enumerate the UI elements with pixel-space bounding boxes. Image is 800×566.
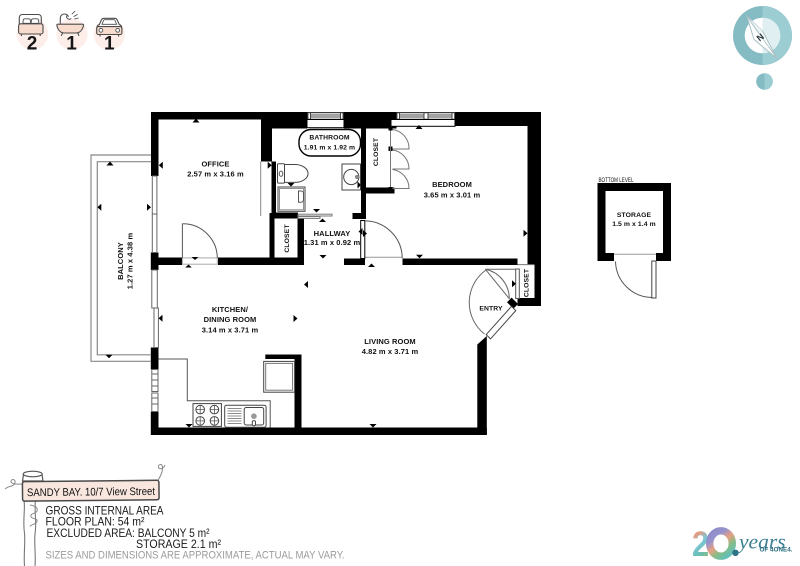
svg-text:1: 1 bbox=[104, 34, 115, 55]
svg-text:2.57 m x 3.16 m: 2.57 m x 3.16 m bbox=[187, 170, 244, 179]
svg-text:1: 1 bbox=[66, 34, 77, 55]
svg-text:BOTTOM LEVEL: BOTTOM LEVEL bbox=[599, 177, 634, 184]
svg-text:BALCONY: BALCONY bbox=[116, 242, 125, 280]
svg-text:SIZES AND DIMENSIONS ARE APPRO: SIZES AND DIMENSIONS ARE APPROXIMATE, AC… bbox=[46, 550, 345, 562]
svg-text:KITCHEN/: KITCHEN/ bbox=[212, 305, 249, 314]
svg-text:3.14 m x 3.71 m: 3.14 m x 3.71 m bbox=[202, 326, 259, 335]
svg-text:4.82 m x 3.71 m: 4.82 m x 3.71 m bbox=[362, 347, 419, 356]
svg-text:1.31 m x 0.92 m: 1.31 m x 0.92 m bbox=[304, 238, 361, 247]
svg-text:2: 2 bbox=[27, 34, 38, 55]
svg-text:CLOSET: CLOSET bbox=[284, 224, 291, 253]
svg-text:BATHROOM: BATHROOM bbox=[309, 135, 350, 142]
svg-text:OFFICE: OFFICE bbox=[201, 160, 229, 169]
svg-text:DINING ROOM: DINING ROOM bbox=[204, 315, 257, 324]
svg-text:1.5 m x 1.4 m: 1.5 m x 1.4 m bbox=[612, 221, 656, 228]
svg-text:STORAGE: STORAGE bbox=[617, 212, 652, 219]
svg-text:3.65 m x 3.01 m: 3.65 m x 3.01 m bbox=[424, 191, 481, 200]
svg-text:ENTRY: ENTRY bbox=[479, 306, 503, 313]
svg-text:CLOSET: CLOSET bbox=[524, 268, 531, 297]
svg-text:LIVING ROOM: LIVING ROOM bbox=[364, 337, 416, 346]
svg-text:SANDY BAY. 10/7 View Street: SANDY BAY. 10/7 View Street bbox=[27, 486, 155, 499]
svg-text:HALLWAY: HALLWAY bbox=[314, 229, 351, 238]
svg-text:1.27 m x 4.38 m: 1.27 m x 4.38 m bbox=[126, 233, 135, 290]
svg-text:OF 4ONE4.: OF 4ONE4. bbox=[760, 547, 793, 554]
svg-text:1.91 m x 1.92 m: 1.91 m x 1.92 m bbox=[304, 145, 355, 152]
svg-text:CLOSET: CLOSET bbox=[373, 137, 380, 166]
svg-text:BEDROOM: BEDROOM bbox=[432, 180, 472, 189]
